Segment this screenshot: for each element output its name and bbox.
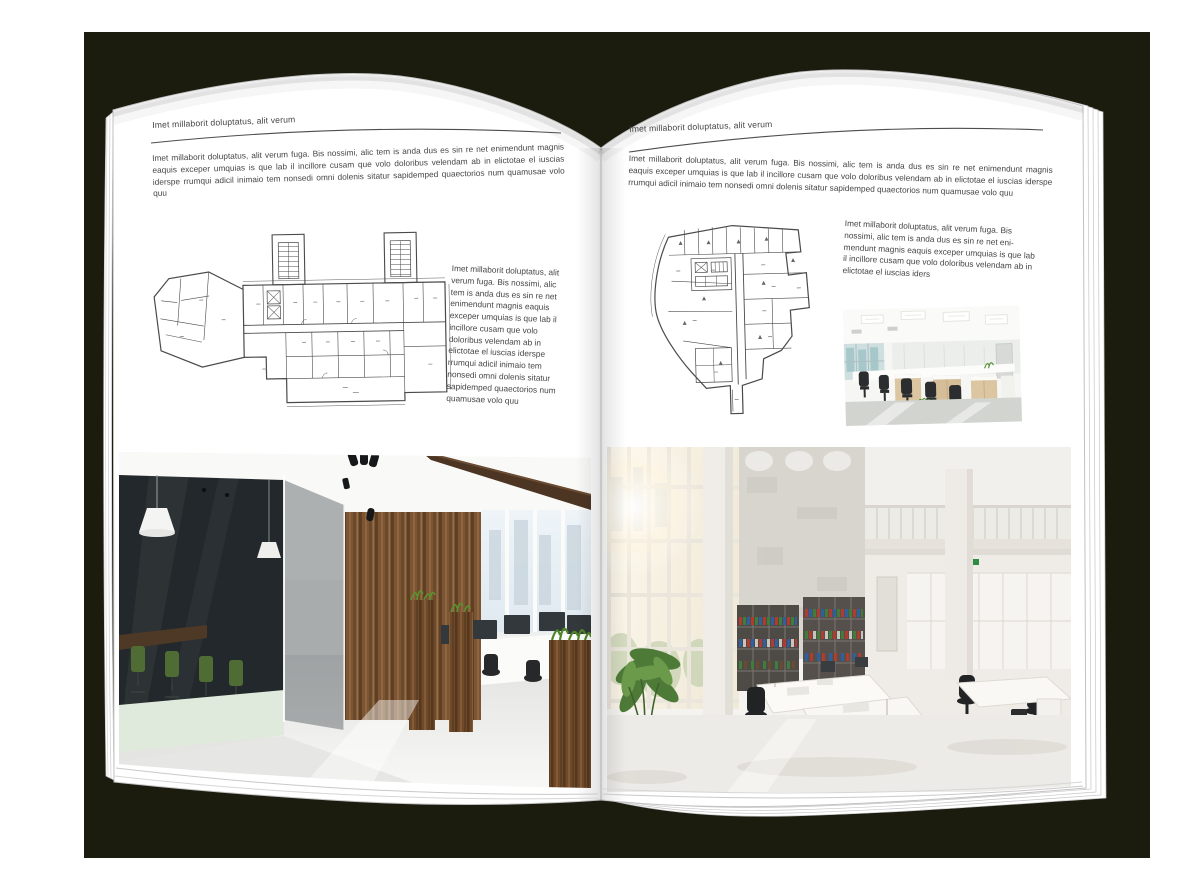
page-stack-left	[104, 112, 114, 780]
right-page-side-text: Imet millaborit doluptatus, alit verum f…	[842, 218, 1040, 286]
open-book-graphic	[0, 0, 1200, 891]
magazine-spread-mockup: Imet millaborit doluptatus, alit verum I…	[0, 0, 1200, 891]
left-page-side-text: Imet millaborit doluptatus, alit verum f…	[446, 263, 570, 409]
photo-small-office	[843, 305, 1022, 426]
photo-atrium-office	[563, 437, 1071, 792]
photo-loft-office	[119, 450, 591, 790]
